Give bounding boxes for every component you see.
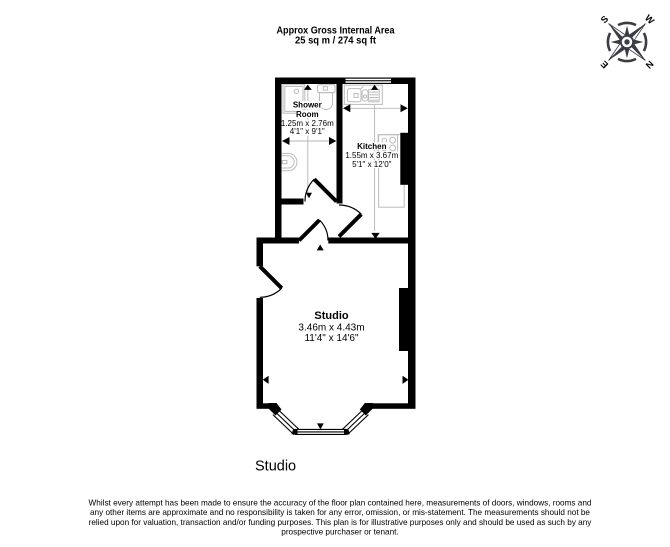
svg-text:Studio: Studio (255, 459, 296, 475)
svg-text:Room: Room (296, 110, 319, 119)
svg-text:11'4" x 14'6": 11'4" x 14'6" (304, 333, 359, 344)
svg-text:Studio: Studio (314, 310, 348, 322)
svg-text:3.46m x 4.43m: 3.46m x 4.43m (298, 323, 364, 334)
svg-text:relied upon for valuation, tra: relied upon for valuation, transaction a… (89, 518, 593, 527)
svg-text:Shower: Shower (293, 101, 322, 110)
svg-text:Kitchen: Kitchen (357, 142, 386, 151)
svg-text:5'1" x 12'0": 5'1" x 12'0" (352, 160, 392, 169)
svg-text:Whilst every attempt has been: Whilst every attempt has been made to en… (89, 499, 592, 508)
svg-text:prospective purchaser or tenan: prospective purchaser or tenant. (281, 527, 398, 536)
svg-text:any other items are approximat: any other items are approximate and no r… (90, 508, 590, 517)
svg-text:1.55m x 3.67m: 1.55m x 3.67m (345, 151, 398, 160)
svg-text:4'1" x 9'1": 4'1" x 9'1" (290, 127, 325, 136)
svg-text:25 sq m / 274 sq ft: 25 sq m / 274 sq ft (295, 34, 376, 46)
